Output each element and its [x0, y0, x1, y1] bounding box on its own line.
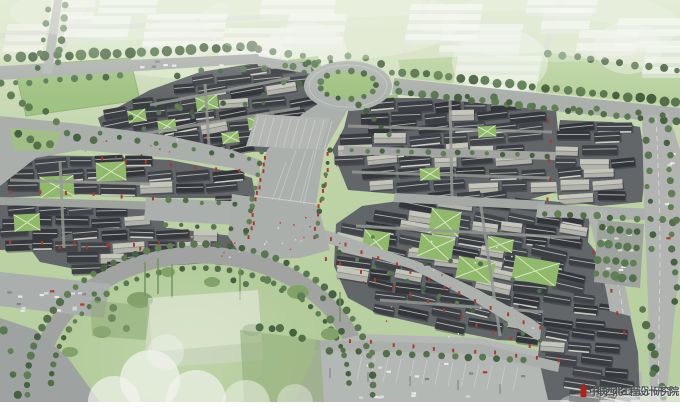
svg-text:中联西北工程设计研究院: 中联西北工程设计研究院: [589, 385, 679, 398]
